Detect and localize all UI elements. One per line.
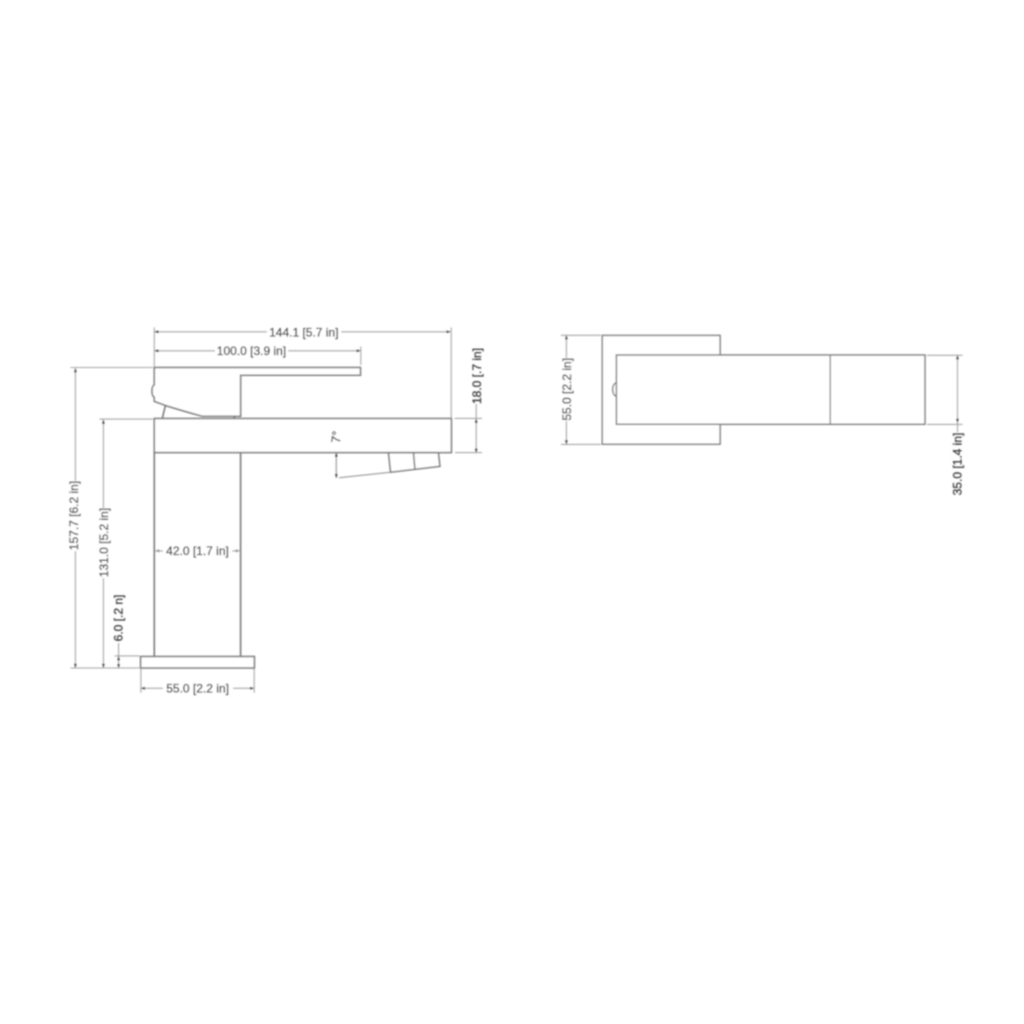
- svg-text:35.0 [1.4 in]: 35.0 [1.4 in]: [950, 433, 964, 496]
- svg-text:131.0 [5.2 in]: 131.0 [5.2 in]: [97, 508, 111, 577]
- svg-text:157.7 [6.2 in]: 157.7 [6.2 in]: [67, 481, 81, 550]
- svg-text:42.0 [1.7 in]: 42.0 [1.7 in]: [166, 544, 229, 558]
- svg-text:18.0 [.7 in]: 18.0 [.7 in]: [470, 348, 484, 404]
- svg-text:55.0 [2.2 in]: 55.0 [2.2 in]: [166, 682, 229, 696]
- svg-text:144.1 [5.7 in]: 144.1 [5.7 in]: [269, 325, 338, 339]
- svg-text:100.0 [3.9 in]: 100.0 [3.9 in]: [217, 344, 286, 358]
- svg-text:7°: 7°: [329, 430, 344, 444]
- svg-text:55.0 [2.2 in]: 55.0 [2.2 in]: [560, 358, 574, 421]
- svg-text:6.0 [.2 n]: 6.0 [.2 n]: [112, 595, 126, 642]
